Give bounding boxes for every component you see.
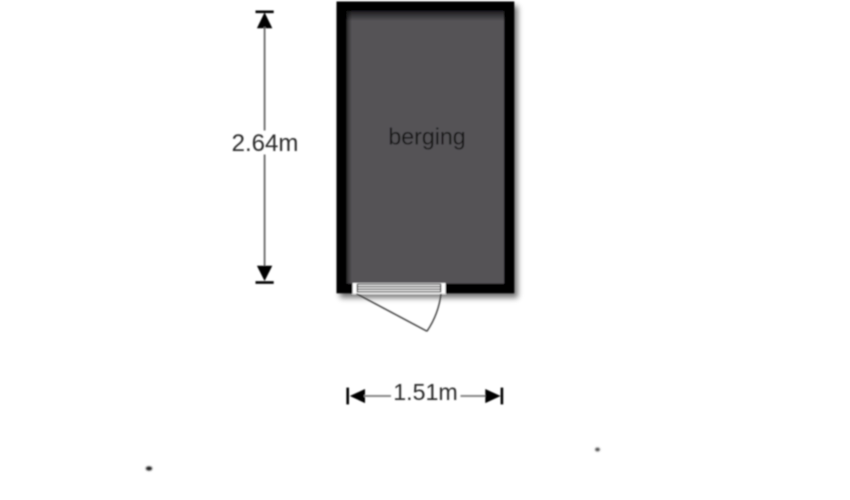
svg-text:2.64m: 2.64m <box>232 130 299 157</box>
svg-text:1.51m: 1.51m <box>393 379 457 405</box>
svg-text:berging: berging <box>388 123 465 149</box>
